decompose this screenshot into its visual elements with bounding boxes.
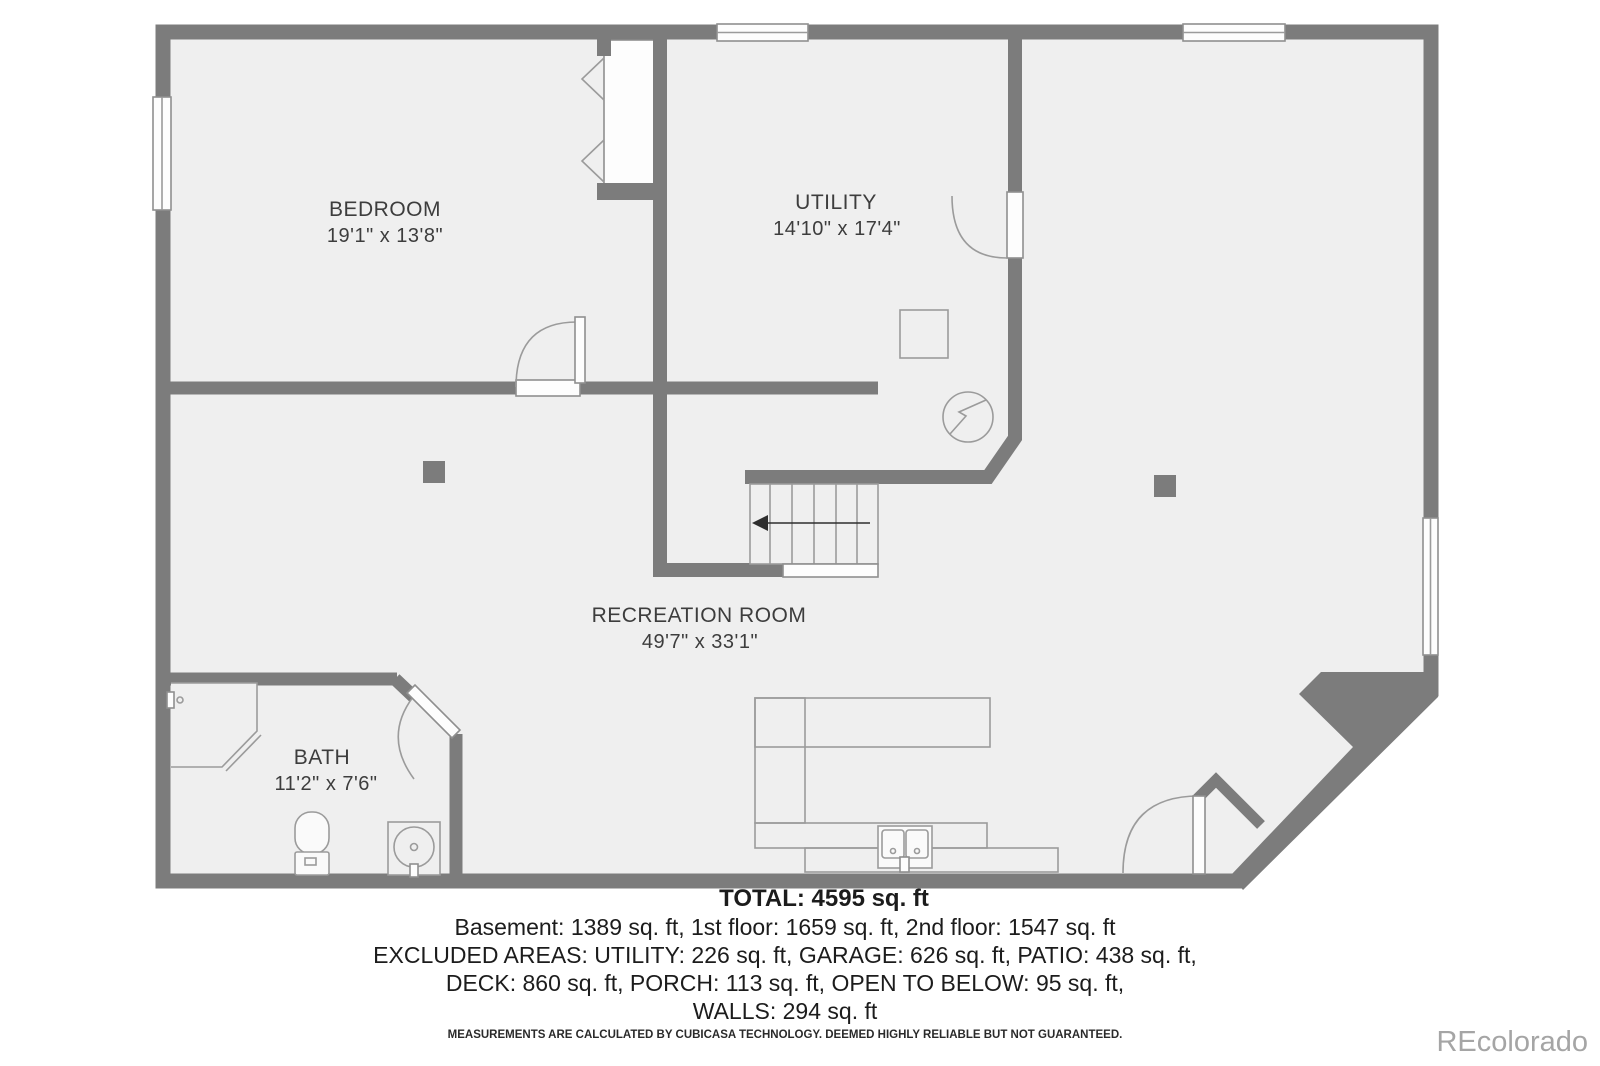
window-top-left [717, 24, 808, 41]
excluded-areas-text-1: EXCLUDED AREAS: UTILITY: 226 sq. ft, GAR… [373, 942, 1197, 968]
bedroom-door-leaf [575, 317, 585, 383]
support-column-left [423, 461, 445, 483]
floor-plan-drawing: BEDROOM 19'1" x 13'8" UTILITY 14'10" x 1… [0, 0, 1600, 1066]
recreation-room-dims: 49'7" x 33'1" [642, 631, 758, 653]
excluded-areas-text-3: WALLS: 294 sq. ft [693, 998, 878, 1024]
closet-stub-wall [597, 32, 611, 56]
window-top-right [1183, 24, 1285, 41]
bedroom-label: BEDROOM [329, 198, 441, 221]
vanity-sink-icon [388, 822, 440, 877]
disclaimer-text: MEASUREMENTS ARE CALCULATED BY CUBICASA … [448, 1029, 1123, 1041]
total-area-text: TOTAL: 4595 sq. ft [719, 885, 929, 912]
kitchen-sink-icon [878, 826, 932, 872]
utility-label: UTILITY [795, 191, 877, 214]
recreation-room-label: RECREATION ROOM [592, 604, 807, 627]
excluded-areas-text-2: DECK: 860 sq. ft, PORCH: 113 sq. ft, OPE… [446, 970, 1124, 996]
closet-bottom-wall [597, 183, 667, 200]
bedroom-dims: 19'1" x 13'8" [327, 225, 443, 247]
floor-plan-page: BEDROOM 19'1" x 13'8" UTILITY 14'10" x 1… [0, 0, 1600, 1066]
floor-area [163, 32, 1431, 881]
bath-dims: 11'2" x 7'6" [274, 773, 377, 795]
stair-railing [783, 564, 878, 577]
support-column-right [1154, 475, 1176, 497]
bath-label: BATH [294, 746, 350, 769]
area-summary: TOTAL: 4595 sq. ft Basement: 1389 sq. ft… [373, 885, 1197, 1041]
toilet-icon [295, 812, 329, 875]
window-left-wall [153, 97, 171, 210]
stairs [750, 484, 878, 577]
utility-dims: 14'10" x 17'4" [773, 218, 901, 240]
closet-floor [604, 40, 656, 190]
furnace-box-icon [900, 310, 948, 358]
rec-room-door-leaf [1193, 796, 1205, 874]
watermark-text: REcolorado [1436, 1026, 1588, 1058]
window-right-wall [1423, 518, 1438, 655]
floor-areas-text: Basement: 1389 sq. ft, 1st floor: 1659 s… [454, 914, 1116, 940]
